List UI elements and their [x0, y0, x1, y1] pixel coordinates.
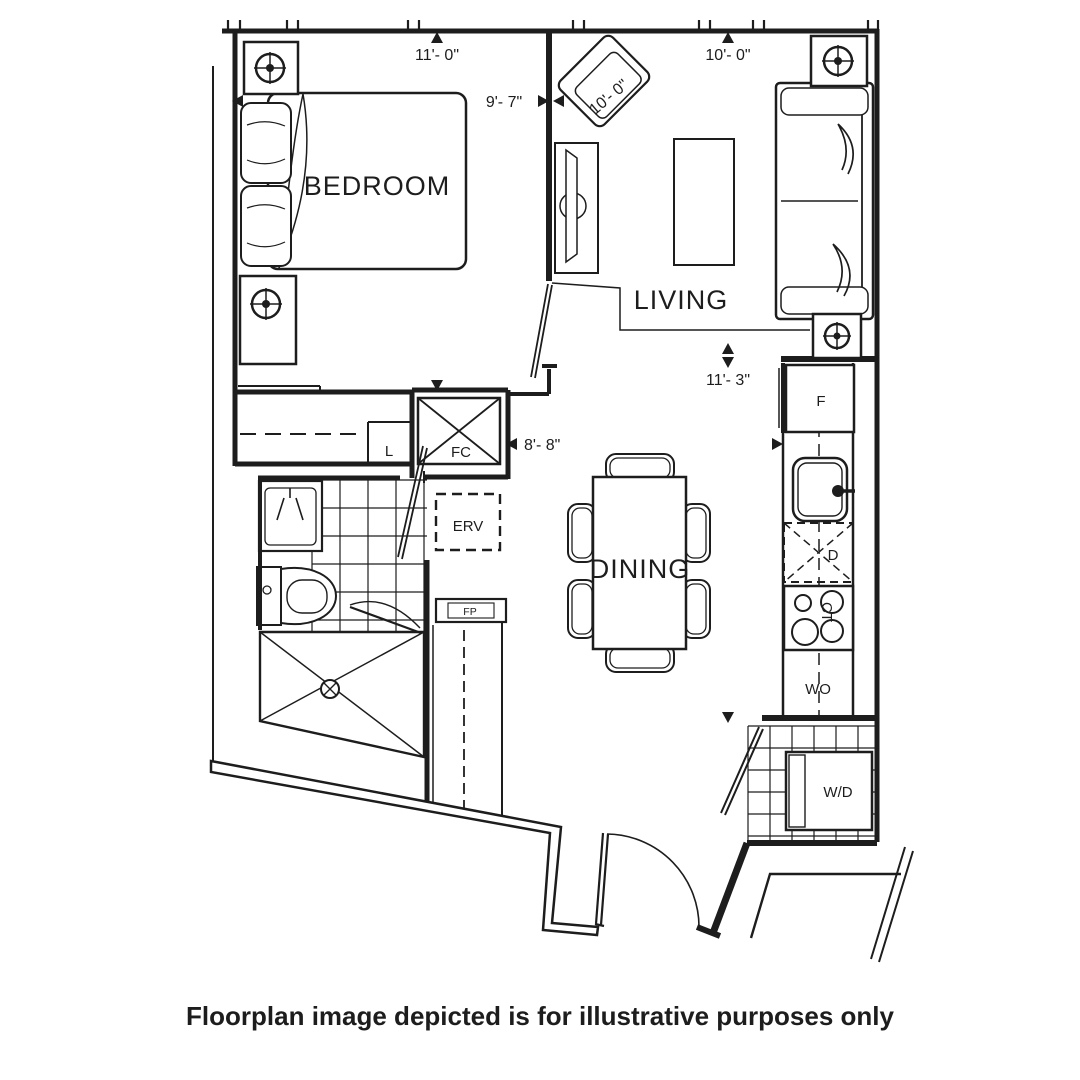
column-symbol: [813, 314, 861, 358]
coffee-table: [674, 139, 734, 265]
kitchen-run-dim: 11'- 3": [706, 372, 750, 389]
party-wall-line: [871, 847, 913, 962]
column-center: [834, 333, 841, 340]
caption-text: Floorplan image depicted is for illustra…: [186, 1001, 894, 1031]
wall-oven-label: WO: [805, 681, 831, 698]
column-center: [266, 64, 274, 72]
dining-chair-inner: [610, 648, 670, 668]
laundry-closet: [721, 727, 872, 830]
cooktop-label: CT: [818, 602, 835, 622]
entry-closet: [433, 599, 506, 818]
floorplan-page: BEDROOM LIVING DINING L FC ERV FP F D CT…: [0, 0, 1080, 1080]
kitchen: [779, 363, 855, 718]
bedroom-door-leaf: [531, 284, 552, 378]
column-symbol: [240, 276, 296, 364]
hallway-wall-line: [751, 874, 901, 938]
column-symbol: [811, 36, 867, 86]
dining-chair-inner: [572, 584, 592, 634]
dining-width-dim: 8'- 8": [524, 437, 560, 454]
laundry-door-leaf: [721, 727, 763, 815]
vanity-sink: [259, 481, 322, 551]
washer-dryer-label: W/D: [823, 784, 852, 801]
arrow-up: [722, 32, 734, 43]
pillow: [241, 103, 291, 183]
dining-label: DINING: [590, 554, 691, 584]
bedroom-depth-dim: 9'- 7": [486, 94, 522, 111]
dishwasher-label: D: [828, 547, 839, 564]
column-symbol: [244, 42, 298, 94]
sofa: [776, 83, 873, 319]
bathroom: [257, 446, 427, 757]
fridge-label: F: [816, 393, 825, 410]
living-label: LIVING: [634, 285, 729, 315]
sofa-armrest: [781, 287, 868, 314]
floorplan-drawing: BEDROOM LIVING DINING L FC ERV FP F D CT…: [0, 0, 1080, 1080]
bedroom-label: BEDROOM: [304, 171, 451, 201]
column-center: [262, 300, 270, 308]
erv-label: ERV: [453, 518, 484, 535]
bedroom-width-dim: 11'- 0": [415, 47, 459, 64]
arrow-right: [772, 438, 783, 450]
linen-label: L: [385, 443, 393, 460]
dining-chair-inner: [572, 508, 592, 558]
pillow: [241, 186, 291, 266]
entry-door-leaf: [595, 833, 608, 926]
column-center: [834, 57, 842, 65]
toilet: [257, 567, 336, 625]
sofa-armrest: [781, 88, 868, 115]
arrow-hourglass: [722, 343, 734, 368]
dining-chair-inner: [686, 584, 706, 634]
living-width-dim: 10'- 0": [705, 47, 750, 64]
arrow-down: [722, 712, 734, 723]
toilet-seat: [287, 580, 327, 613]
entry-diagonal-wall: [713, 843, 747, 933]
arrow-left: [553, 95, 564, 107]
bottom-wall-band: [211, 761, 598, 935]
accent-chair: [556, 33, 652, 129]
entry-door-arc: [607, 834, 699, 929]
dining-chair-inner: [686, 508, 706, 558]
kitchen-sink: [793, 458, 855, 521]
shower: [260, 602, 424, 757]
fan-coil-label: FC: [451, 444, 471, 461]
shower-door-arc: [350, 602, 420, 628]
entry-door: [595, 833, 699, 929]
tv-panel: [566, 150, 577, 262]
dining-chair-inner: [610, 458, 670, 478]
arrow-up: [431, 32, 443, 43]
fp-label: FP: [463, 606, 476, 618]
